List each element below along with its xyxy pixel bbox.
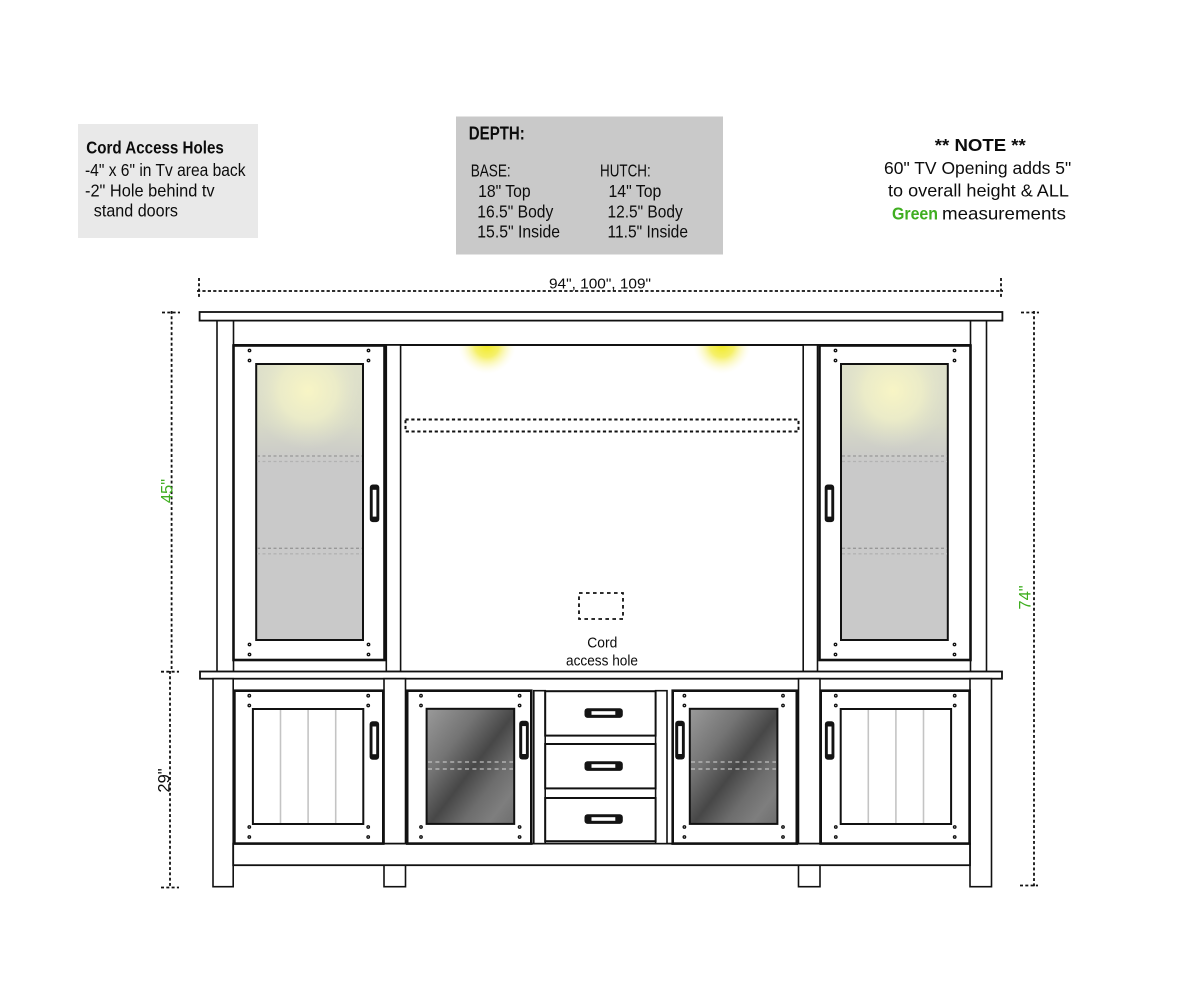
svg-text:Cord Access Holes: Cord Access Holes — [86, 138, 224, 158]
svg-text:HUTCH:: HUTCH: — [600, 161, 651, 181]
svg-text:measurements: measurements — [942, 203, 1066, 223]
svg-text:29": 29" — [155, 768, 173, 792]
svg-text:45": 45" — [159, 479, 177, 503]
svg-text:11.5" Inside: 11.5" Inside — [608, 221, 689, 241]
svg-text:18" Top: 18" Top — [478, 181, 531, 201]
svg-text:94", 100", 109": 94", 100", 109" — [549, 275, 651, 292]
svg-text:access hole: access hole — [566, 654, 638, 670]
svg-text:16.5" Body: 16.5" Body — [477, 201, 553, 221]
svg-text:Cord: Cord — [587, 635, 617, 651]
svg-text:74": 74" — [1017, 585, 1035, 609]
svg-text:stand doors: stand doors — [94, 200, 178, 220]
svg-text:DEPTH:: DEPTH: — [469, 124, 525, 144]
svg-text:** NOTE **: ** NOTE ** — [935, 135, 1026, 155]
svg-text:12.5" Body: 12.5" Body — [608, 201, 683, 221]
svg-text:Green: Green — [892, 203, 938, 223]
svg-text:BASE:: BASE: — [471, 161, 511, 181]
svg-text:to overall height & ALL: to overall height & ALL — [888, 181, 1069, 201]
svg-text:60" TV Opening adds 5": 60" TV Opening adds 5" — [884, 158, 1071, 178]
svg-text:14" Top: 14" Top — [609, 181, 662, 201]
svg-text:15.5" Inside: 15.5" Inside — [477, 221, 560, 241]
svg-text:-4" x 6" in Tv area back: -4" x 6" in Tv area back — [85, 160, 246, 180]
svg-text:-2" Hole behind tv: -2" Hole behind tv — [85, 181, 215, 201]
